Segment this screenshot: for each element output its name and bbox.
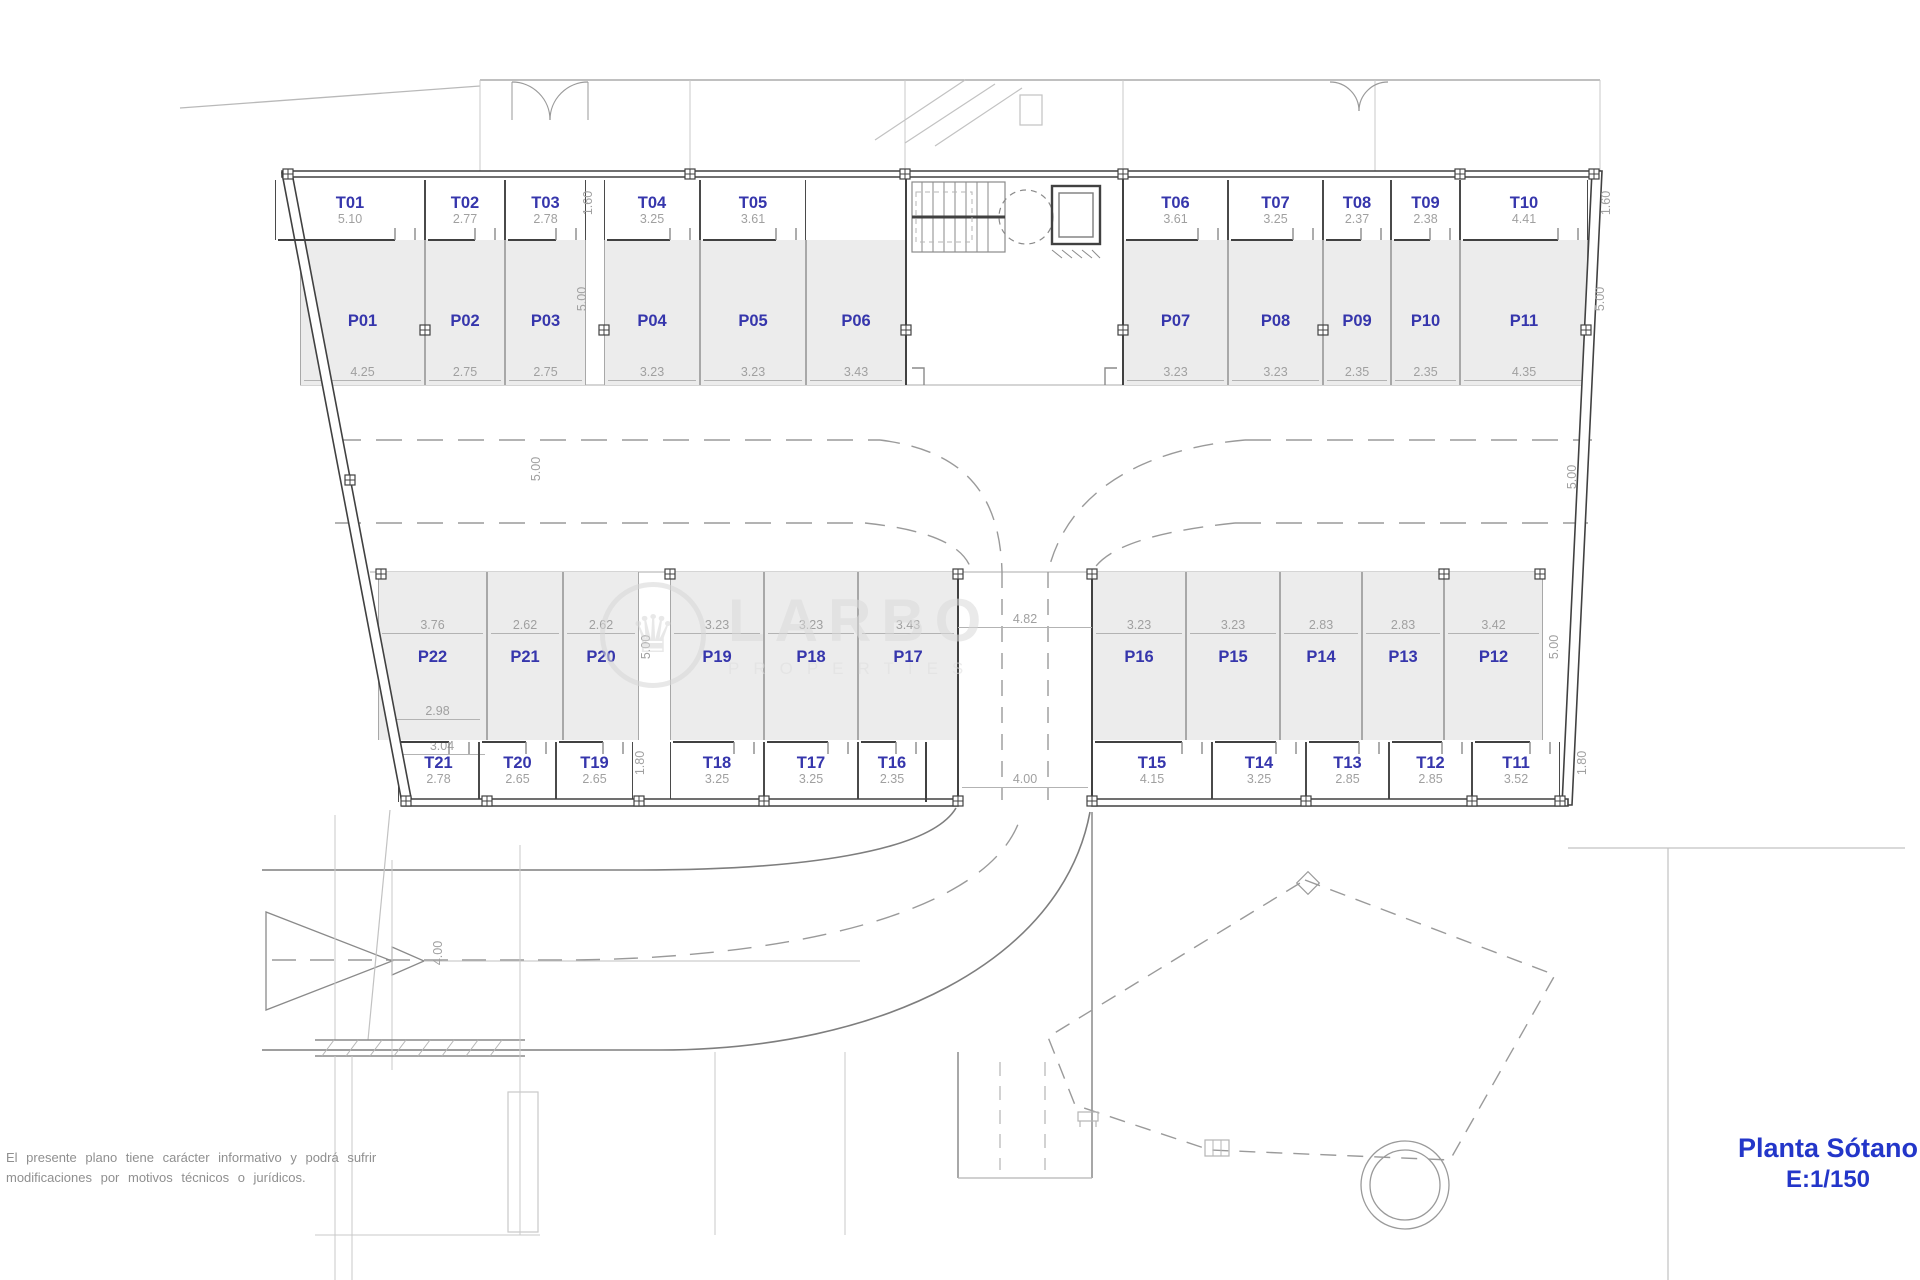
basement-floor-plan: T015.10T022.77T032.78T043.25T053.61T063.… [0,0,1920,1280]
page-title: Planta Sótano [1738,1132,1918,1164]
dim-aisle-width-right: 5.00 [1565,455,1579,499]
dim-parking-depth-bottom-left: 5.00 [639,625,653,669]
dim-aisle-width-left: 5.00 [529,447,543,491]
dim-ramp-opening: 4.82 [958,612,1092,628]
dim-bottom-storage-depth-right: 1.80 [1575,741,1589,785]
dim-parking-depth-left: 5.00 [575,277,589,321]
title-block: Planta Sótano E:1/150 [1738,1132,1918,1196]
dim-top-storage-depth-left: 1.60 [581,181,595,225]
dim-ramp-width: 4.00 [962,772,1088,788]
dim-parking-depth-bottom-right: 5.00 [1547,625,1561,669]
disclaimer-line1: El presente plano tiene carácter informa… [6,1148,376,1168]
scale-label: E:1/150 [1786,1164,1870,1195]
dim-top-storage-depth-right: 1.60 [1599,181,1613,225]
walls-linework [0,0,1920,1280]
dim-parking-depth-right: 5.00 [1593,277,1607,321]
disclaimer-line2: modificaciones por motivos técnicos o ju… [6,1168,376,1188]
dim-road-width: 4.00 [431,931,445,975]
disclaimer: El presente plano tiene carácter informa… [6,1148,376,1188]
dim-bottom-storage-depth-left: 1.80 [633,741,647,785]
